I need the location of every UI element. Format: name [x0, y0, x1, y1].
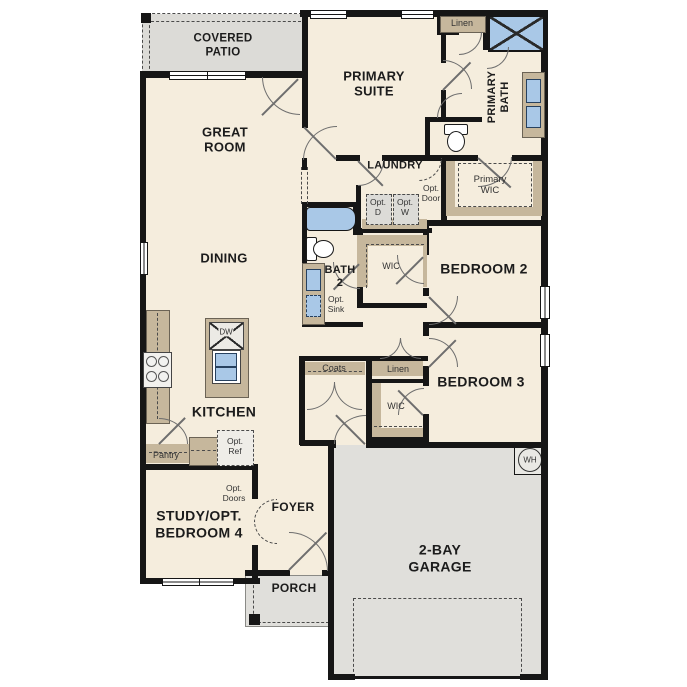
- window: [540, 286, 550, 319]
- burner: [158, 356, 169, 367]
- coats-label: Coats: [322, 363, 346, 373]
- window: [207, 71, 246, 80]
- primary-wic-label: Primary WIC: [474, 175, 507, 197]
- label-line: Door: [422, 194, 440, 204]
- wall: [252, 545, 258, 584]
- label-line: PRIMARY: [343, 69, 405, 84]
- wall: [302, 14, 308, 128]
- bedroom3-label: BEDROOM 3: [437, 374, 525, 391]
- wall: [423, 288, 429, 296]
- wall: [420, 220, 548, 226]
- window: [401, 10, 434, 19]
- burner: [146, 371, 157, 382]
- porch-dashed-bottom: [253, 622, 329, 623]
- patio-dashed-edge-left: [142, 14, 143, 74]
- wall: [366, 437, 429, 442]
- bath2-opt-sink: [306, 295, 321, 317]
- label-line: 2: [325, 277, 356, 290]
- primary-sink-2: [526, 106, 541, 128]
- wic-bed2-label: WIC: [382, 261, 400, 271]
- primary-bath-label: PRIMARY BATH: [486, 71, 512, 123]
- wall: [336, 155, 360, 161]
- counter-line: [191, 450, 216, 451]
- floor-plan: WH: [0, 0, 687, 687]
- wall: [425, 117, 430, 160]
- primary-sink-1: [526, 79, 541, 103]
- label-line: BATH: [325, 264, 356, 277]
- wall: [328, 674, 355, 680]
- water-heater-label: WH: [523, 455, 536, 464]
- opt-ref-label: Opt. Ref: [227, 437, 243, 457]
- island-sink-basin-1: [215, 353, 237, 367]
- label-line: STUDY/OPT.: [155, 507, 243, 524]
- patio-dashed-edge-left-inner: [149, 20, 150, 74]
- label-line: GREAT: [202, 125, 248, 140]
- wall: [423, 366, 429, 386]
- island-sink-basin-2: [215, 367, 237, 381]
- wall: [441, 33, 446, 63]
- window: [540, 334, 550, 367]
- label-line: Doors: [223, 494, 246, 504]
- label-line: 2-BAY: [408, 541, 471, 558]
- cased-opening: [301, 167, 308, 204]
- linen-primary-label: Linen: [451, 18, 473, 28]
- foyer-label: FOYER: [272, 500, 315, 514]
- bedroom2-label: BEDROOM 2: [440, 261, 528, 278]
- garage-door-threshold: [355, 676, 520, 679]
- window: [169, 71, 208, 80]
- label-line: PATIO: [194, 46, 253, 60]
- pantry-label: Pantry: [153, 450, 179, 460]
- burner: [158, 371, 169, 382]
- label-line: Sink: [328, 305, 345, 315]
- wall: [300, 440, 336, 446]
- wall: [328, 442, 334, 680]
- label-line: BEDROOM 4: [155, 524, 243, 541]
- label-line: WIC: [474, 186, 507, 197]
- opt-door-label: Opt. Door: [422, 184, 440, 204]
- window: [199, 578, 234, 586]
- kitchen-label: KITCHEN: [192, 404, 256, 421]
- bath2-sink: [306, 269, 321, 291]
- label-line: ROOM: [202, 140, 248, 155]
- label-line: PRIMARY: [486, 71, 499, 123]
- garage-label: 2-BAY GARAGE: [408, 541, 471, 574]
- wall: [520, 674, 548, 680]
- dining-label: DINING: [200, 250, 247, 265]
- label-line: BATH: [499, 71, 512, 123]
- label-line: SUITE: [343, 84, 405, 99]
- patio-dashed-edge-top-inner: [151, 21, 301, 22]
- patio-post: [141, 13, 151, 23]
- wic-bed3-shelf-line: [374, 426, 422, 427]
- laundry-label: LAUNDRY: [367, 160, 422, 173]
- window: [162, 578, 200, 586]
- label-line: Ref: [227, 447, 243, 457]
- covered-patio-label: COVERED PATIO: [194, 32, 253, 59]
- porch-post: [249, 614, 260, 625]
- label-line: W: [397, 208, 413, 218]
- opt-sink-label: Opt. Sink: [328, 295, 345, 315]
- wall: [423, 322, 548, 328]
- opt-doors-label: Opt. Doors: [223, 484, 246, 504]
- wall: [299, 356, 368, 361]
- porch-label: PORCH: [272, 581, 317, 595]
- opt-washer-label: Opt. W: [397, 198, 413, 218]
- label-line: D: [370, 208, 386, 218]
- bath2-label: BATH 2: [325, 264, 356, 290]
- wic-bed3-shelf-bottom: [372, 428, 423, 437]
- opt-dryer-label: Opt. D: [370, 198, 386, 218]
- great-room-label: GREAT ROOM: [202, 125, 248, 156]
- window: [140, 242, 148, 275]
- dishwasher-label: DW: [218, 327, 233, 336]
- toilet-bowl: [447, 131, 465, 152]
- primary-wic-shelf-bottom: [446, 207, 542, 216]
- kitchen-counter-ref: [189, 437, 220, 466]
- wic-bed3-label: WIC: [387, 401, 405, 411]
- garage-door-outline: [353, 598, 522, 677]
- wall: [423, 328, 429, 336]
- toilet-bowl: [313, 240, 334, 258]
- tub: [306, 207, 356, 231]
- wall: [357, 303, 427, 308]
- label-line: COVERED: [194, 32, 253, 46]
- window: [310, 10, 347, 19]
- primary-suite-label: PRIMARY SUITE: [343, 69, 405, 100]
- wall: [366, 442, 548, 448]
- linen-hall-label: Linen: [387, 364, 409, 374]
- wall: [245, 570, 290, 576]
- label-line: GARAGE: [408, 558, 471, 575]
- patio-dashed-edge-top: [142, 13, 302, 14]
- burner: [146, 356, 157, 367]
- study-label: STUDY/OPT. BEDROOM 4: [155, 507, 243, 540]
